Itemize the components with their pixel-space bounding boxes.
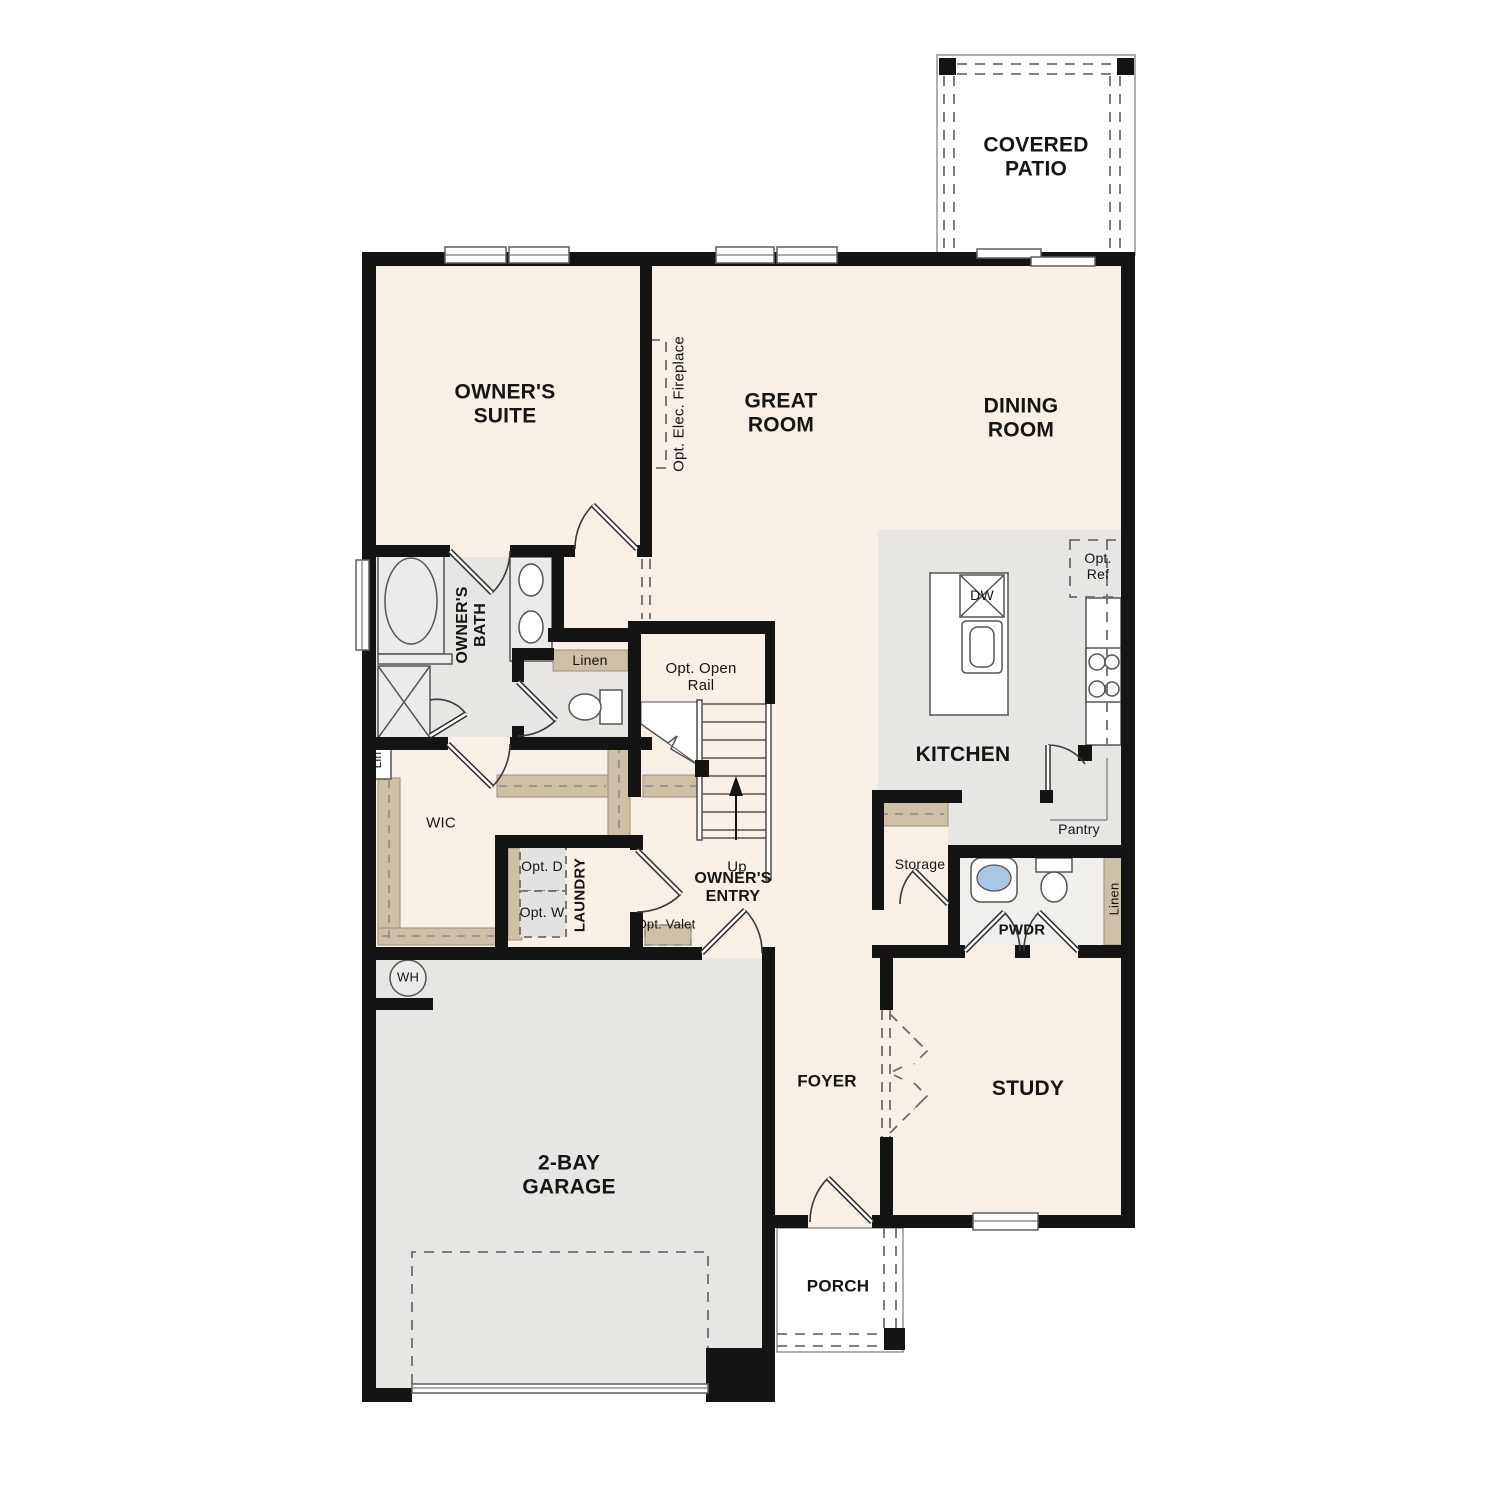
annotation-storage: Storage xyxy=(895,857,945,873)
room-label-garage: 2-BAY GARAGE xyxy=(494,1151,644,1198)
room-label-owners-bath: OWNER'S BATH xyxy=(454,568,490,683)
annotation-dishwasher: DW xyxy=(970,588,994,604)
annotation-opt-fireplace: Opt. Elec. Fireplace xyxy=(672,336,689,472)
room-label-porch: PORCH xyxy=(807,1276,869,1295)
room-label-owners-suite: OWNER'S SUITE xyxy=(440,380,570,427)
room-label-kitchen: KITCHEN xyxy=(916,743,1011,767)
annotation-linen-pwdr: Linen xyxy=(1108,883,1123,916)
room-label-pwdr: PWDR xyxy=(999,923,1046,940)
patio-post xyxy=(939,58,956,75)
patio-post xyxy=(1117,58,1134,75)
room-label-wic: WIC xyxy=(426,816,456,833)
annotation-linen-bath: Linen xyxy=(572,653,607,669)
porch-post xyxy=(884,1328,905,1350)
powder-toilet-bowl xyxy=(1041,872,1067,902)
annotation-lin: Lin xyxy=(371,752,385,769)
room-label-study: STUDY xyxy=(992,1077,1064,1101)
powder-toilet-tank xyxy=(1036,858,1072,872)
room-label-foyer: FOYER xyxy=(797,1071,857,1090)
annotation-pantry: Pantry xyxy=(1058,822,1100,838)
vanity-sink xyxy=(519,564,543,596)
toilet-tank xyxy=(600,690,622,724)
annotation-opt-open-rail: Opt. Open Rail xyxy=(654,661,749,695)
annotation-opt-dryer: Opt. D xyxy=(519,859,565,875)
toilet-bowl xyxy=(569,694,601,720)
floor-plan: COVERED PATIO OWNER'S SUITE GREAT ROOM D… xyxy=(0,0,1500,1500)
stair-rail xyxy=(766,700,771,880)
floor-plan-drawing xyxy=(0,0,1500,1500)
vanity-sink xyxy=(519,611,543,643)
room-label-covered-patio: COVERED PATIO xyxy=(966,133,1106,180)
room-label-great-room: GREAT ROOM xyxy=(721,389,841,436)
bathtub xyxy=(378,550,444,654)
patio-slider xyxy=(1031,257,1095,266)
room-label-dining-room: DINING ROOM xyxy=(961,394,1081,441)
room-label-laundry: LAUNDRY xyxy=(573,858,590,932)
annotation-opt-valet: Opt. Valet xyxy=(636,918,696,933)
annotation-opt-washer: Opt. W xyxy=(519,905,565,921)
annotation-opt-ref: Opt. Ref xyxy=(1075,551,1121,583)
annotation-up: Up xyxy=(727,860,747,877)
annotation-water-heater: WH xyxy=(397,971,419,986)
